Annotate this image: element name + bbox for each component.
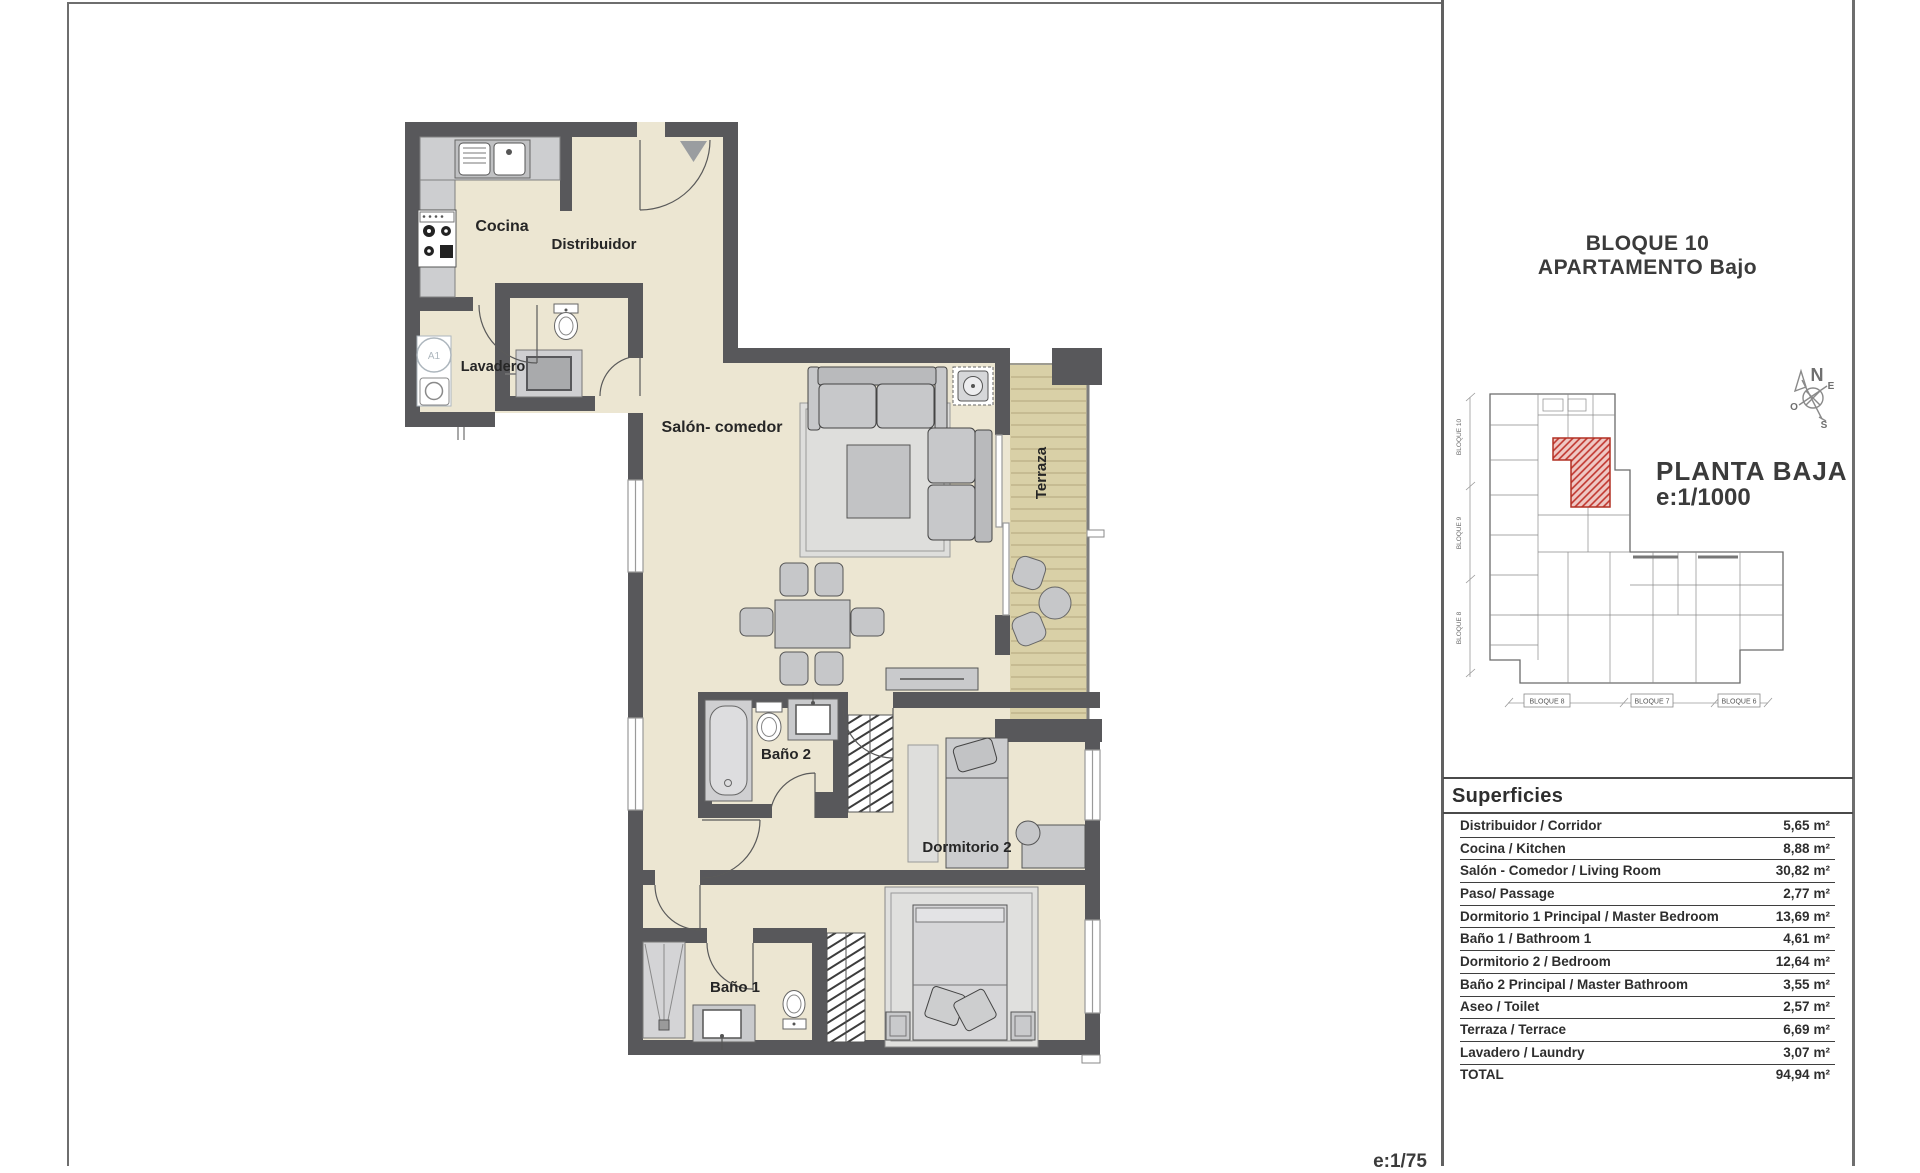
block-labels-bottom: BLOQUE 8 BLOQUE 7 BLOQUE 6: [1524, 694, 1760, 707]
areas-table: Superficies Distribuidor / Corridor 5,65…: [1443, 777, 1853, 1086]
label-bano2: Baño 2: [761, 746, 811, 763]
table-row: Baño 2 Principal / Master Bathroom 3,55m…: [1443, 973, 1853, 996]
plan-scale-note: e:1/75: [1345, 1151, 1455, 1173]
block-label: BLOQUE 9: [1456, 516, 1463, 549]
toilet-icon: [756, 702, 782, 741]
label-cocina: Cocina: [475, 218, 528, 235]
table-row: Cocina / Kitchen 8,88m²: [1443, 837, 1853, 860]
table-row-total: TOTAL 94,94m²: [1443, 1064, 1853, 1087]
kitchen-sink-icon: [455, 140, 530, 178]
dining-chair: [740, 608, 773, 636]
bedroom1-furniture: [885, 887, 1038, 1047]
floor-plan: A1: [395, 95, 1115, 1075]
sideboard: [886, 668, 978, 690]
toilet-icon: [783, 991, 806, 1030]
shower-icon: [643, 942, 685, 1038]
block-label: BLOQUE 8: [1456, 611, 1463, 644]
laundry-fixtures: A1: [417, 336, 451, 406]
toilet-icon: [554, 304, 578, 340]
key-plan-caption: PLANTA BAJA e:1/1000: [1656, 458, 1848, 511]
frame-top-line: [68, 2, 1442, 4]
label-salon: Salón- comedor: [662, 419, 783, 436]
sheet-title: BLOQUE 10 APARTAMENTO Bajo: [1444, 232, 1851, 280]
key-plan-caption-line2: e:1/1000: [1656, 485, 1848, 511]
key-plan-caption-line1: PLANTA BAJA: [1656, 458, 1848, 485]
dining-chair: [815, 563, 843, 596]
desk-chair: [1016, 821, 1040, 845]
block-label: BLOQUE 8: [1529, 699, 1564, 706]
sink-icon: [788, 692, 838, 740]
compass-s: S: [1821, 420, 1828, 431]
bathtub-icon: [705, 700, 752, 801]
block-label: BLOQUE 7: [1634, 699, 1669, 706]
laundry-pipes: [458, 427, 464, 440]
label-dormitorio2: Dormitorio 2: [922, 839, 1011, 856]
sofa-top: [808, 367, 947, 430]
washer-label: A1: [428, 351, 441, 362]
terrace-tick: [1087, 530, 1104, 537]
block-label: BLOQUE 10: [1456, 419, 1463, 456]
table-row: Aseo / Toilet 2,57m²: [1443, 996, 1853, 1019]
block-labels-left: BLOQUE 10 BLOQUE 9 BLOQUE 8: [1456, 419, 1463, 645]
sheet-title-line2: APARTAMENTO Bajo: [1444, 256, 1851, 280]
table-row: Lavadero / Laundry 3,07m²: [1443, 1041, 1853, 1064]
dining-table: [775, 600, 850, 648]
compass-n: N: [1811, 365, 1824, 385]
building-outline: [1490, 394, 1783, 683]
terrace: [1010, 363, 1104, 719]
label-lavadero: Lavadero: [461, 359, 526, 375]
dining-chair: [851, 608, 884, 636]
table-row: Terraza / Terrace 6,69m²: [1443, 1018, 1853, 1041]
step: [1082, 1055, 1100, 1063]
frame-left-line: [67, 2, 69, 1166]
wardrobe-dorm2: [848, 715, 893, 812]
bed1: [913, 905, 1007, 1040]
coffee-table: [847, 445, 910, 518]
table-row: Baño 1 / Bathroom 1 4,61m²: [1443, 927, 1853, 950]
dining-chair: [780, 652, 808, 685]
compass-e: E: [1828, 381, 1835, 392]
stove-icon: [418, 210, 456, 267]
table-row: Distribuidor / Corridor 5,65m²: [1443, 814, 1853, 837]
table-row: Dormitorio 1 Principal / Master Bedroom …: [1443, 905, 1853, 928]
dining-chair: [780, 563, 808, 596]
wardrobe-dorm1: [827, 933, 865, 1042]
label-terraza: Terraza: [1033, 446, 1050, 499]
table-row: Paso/ Passage 2,77m²: [1443, 882, 1853, 905]
dining-chair: [815, 652, 843, 685]
table-row: Dormitorio 2 / Bedroom 12,64m²: [1443, 950, 1853, 973]
sofa-right: [928, 428, 992, 542]
label-bano1: Baño 1: [710, 979, 760, 996]
areas-table-header: Superficies: [1443, 779, 1853, 812]
tv-unit-icon: [953, 367, 993, 405]
table-row: Salón - Comedor / Living Room 30,82m²: [1443, 859, 1853, 882]
block-label: BLOQUE 6: [1721, 699, 1756, 706]
site-key-plan: BLOQUE 10 BLOQUE 9 BLOQUE 8 BLOQUE 8 BLO…: [1448, 385, 1793, 720]
label-distribuidor: Distribuidor: [552, 236, 637, 253]
architectural-sheet: { "page": { "title_line1": "BLOQUE 10", …: [0, 0, 1920, 1166]
sheet-title-line1: BLOQUE 10: [1444, 232, 1851, 256]
